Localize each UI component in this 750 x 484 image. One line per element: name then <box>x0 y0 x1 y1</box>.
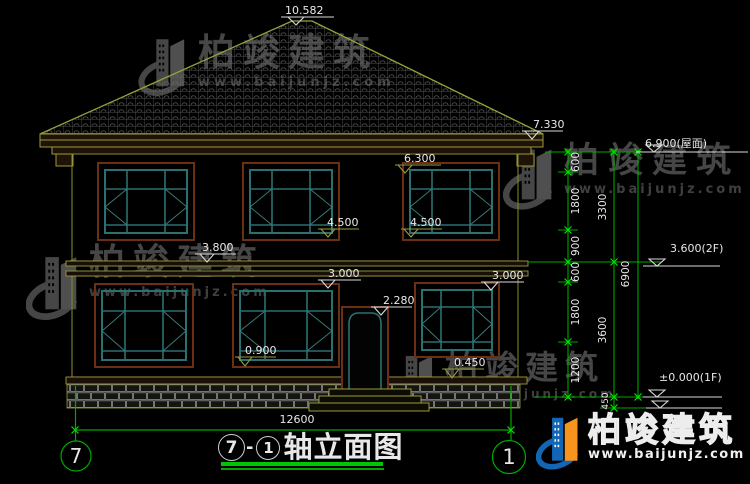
elev-door-top: 2.280 <box>383 294 415 307</box>
elev-floor2: 3.600(2F) <box>670 242 723 255</box>
elev-win1-top-right: 3.000 <box>492 269 524 282</box>
eave-bracket-left <box>56 154 73 166</box>
dimension-chains-right <box>528 150 662 410</box>
dim-total-width: 12600 <box>280 413 315 426</box>
brand-logo-name: 柏竣建筑 <box>588 413 745 446</box>
axis-number-right: 1 <box>502 445 515 469</box>
entry-steps <box>309 389 429 411</box>
axis-bubble-left <box>61 441 91 471</box>
watermark-brand: 柏竣建筑 <box>198 34 395 71</box>
dim-seg: 1800 <box>570 299 582 326</box>
axis-bubble-right <box>493 441 526 474</box>
window-2f-left <box>98 163 194 240</box>
brand-logo-url: www.baijunjz.com <box>588 447 745 462</box>
elevation-linework: 7 1 12600 6 <box>0 0 750 484</box>
plinth-masonry <box>67 384 520 408</box>
watermark-url: www.baijunjz.com <box>445 387 616 401</box>
eave-bracket-right <box>517 154 534 166</box>
dim-seg: 600 <box>570 262 582 282</box>
watermark-url: www.baijunjz.com <box>89 285 270 300</box>
dim-seg: 3600 <box>597 317 609 344</box>
roof-tile-hatch <box>40 21 543 134</box>
watermark-building-icon <box>503 144 559 216</box>
wall-first-floor <box>72 276 518 377</box>
dim-seg: 600 <box>570 152 582 172</box>
window-1f-middle <box>233 284 339 367</box>
watermark-building-icon <box>388 351 440 415</box>
title-underline-thin <box>221 468 384 470</box>
elev-plinth-top: 0.450 <box>454 356 486 369</box>
axis-grid <box>61 386 526 474</box>
elevation-labels: 10.582 7.330 6.300 4.500 4.500 3.800 3.0… <box>202 4 723 384</box>
brand-logo-icon <box>536 413 584 475</box>
elev-win2-sill-right: 4.500 <box>410 216 442 229</box>
elev-win2-sill-left: 4.500 <box>327 216 359 229</box>
window-1f-right <box>415 283 499 357</box>
watermark-brand: 柏竣建筑 <box>445 351 616 384</box>
elev-win1-top-left: 3.000 <box>328 267 360 280</box>
dimension-labels-right: 600 1800 900 600 1800 1200 3300 3600 450… <box>570 152 632 410</box>
dim-seg: 1200 <box>570 357 582 384</box>
elev-ridge: 10.582 <box>285 4 324 17</box>
plinth <box>66 377 527 408</box>
floor-band <box>66 261 528 276</box>
watermark-building-icon <box>26 245 84 333</box>
window-1f-left <box>95 284 193 367</box>
watermark-right: 柏竣建筑 www.baijunjz.com <box>503 144 745 216</box>
watermark-brand: 柏竣建筑 <box>564 144 745 179</box>
dim-seg: 900 <box>570 236 582 256</box>
watermark-brand: 柏竣建筑 <box>89 245 270 281</box>
wall-second-floor <box>72 154 518 261</box>
dimension-ticks <box>565 149 642 412</box>
window-2f-middle <box>243 163 339 240</box>
elev-win1-sill: 0.900 <box>245 344 277 357</box>
axis-number-left: 7 <box>70 444 83 468</box>
watermark-left: 柏竣建筑 www.baijunjz.com <box>26 245 270 333</box>
watermark-url: www.baijunjz.com <box>564 182 745 197</box>
roof <box>40 21 543 134</box>
watermark-top: 柏竣建筑 www.baijunjz.com <box>138 34 395 102</box>
drawing-title: 7 - 1 轴立面图 <box>218 433 404 462</box>
elevation-markers <box>195 17 748 408</box>
watermark-bottom: 柏竣建筑 www.baijunjz.com <box>388 351 616 415</box>
title-underline-thick <box>221 462 383 466</box>
dim-seg: 1800 <box>570 188 582 215</box>
title-axis-start-bubble: 7 <box>218 434 245 461</box>
elev-eave: 7.330 <box>533 118 565 131</box>
brand-logo: 柏竣建筑 www.baijunjz.com <box>536 413 745 475</box>
dimension-bottom: 12600 <box>72 413 515 434</box>
watermark-building-icon <box>138 34 192 102</box>
title-axis-end-bubble: 1 <box>256 436 280 460</box>
dim-seg: 3300 <box>597 194 609 221</box>
dim-seg: 450 <box>601 392 611 409</box>
title-dash: - <box>246 439 253 457</box>
elev-band: 3.800 <box>202 241 234 254</box>
watermark-url: www.baijunjz.com <box>198 75 395 90</box>
elev-win2-top: 6.300 <box>404 152 436 165</box>
dim-seg: 6900 <box>620 261 632 288</box>
plinth-molding <box>66 377 527 384</box>
title-text: 轴立面图 <box>283 433 403 462</box>
window-2f-right <box>403 163 499 240</box>
elev-roof-level: 6.900(屋面) <box>645 137 707 150</box>
entry-door <box>342 307 388 395</box>
cad-elevation-drawing: 柏竣建筑 www.baijunjz.com 柏竣建筑 www.baijunjz.… <box>0 0 750 484</box>
elev-floor1: ±0.000(1F) <box>659 371 722 384</box>
eave-cornice <box>40 134 543 166</box>
